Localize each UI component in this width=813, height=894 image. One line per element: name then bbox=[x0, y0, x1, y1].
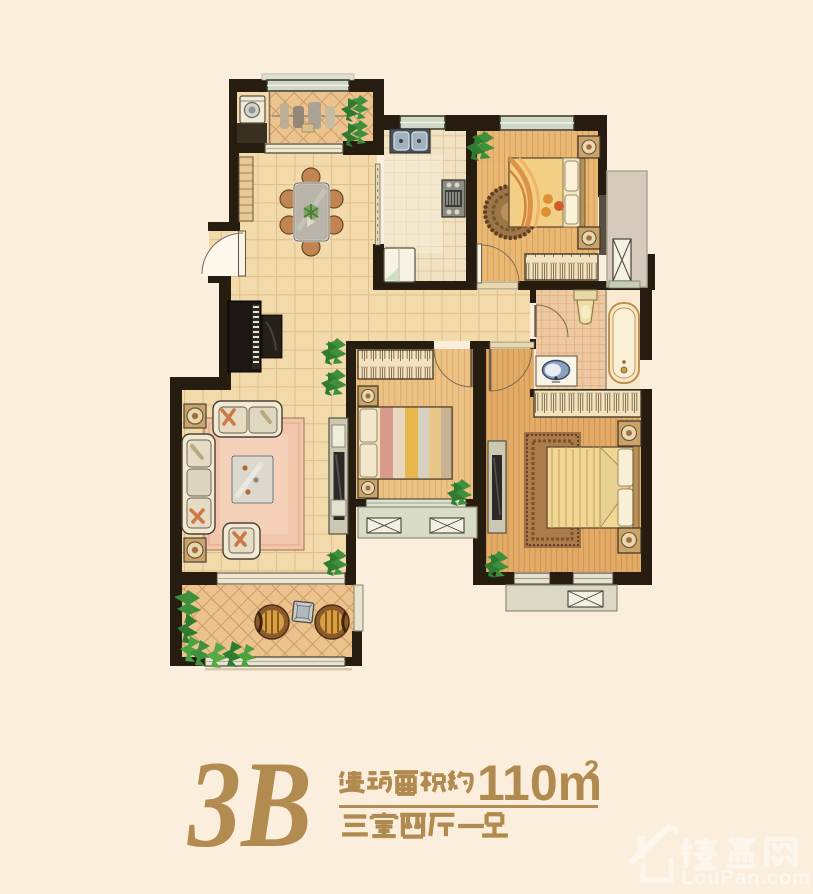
svg-text:3B: 3B bbox=[187, 736, 312, 873]
svg-text:2: 2 bbox=[584, 755, 599, 785]
svg-text:LouPan.com: LouPan.com bbox=[681, 867, 811, 889]
